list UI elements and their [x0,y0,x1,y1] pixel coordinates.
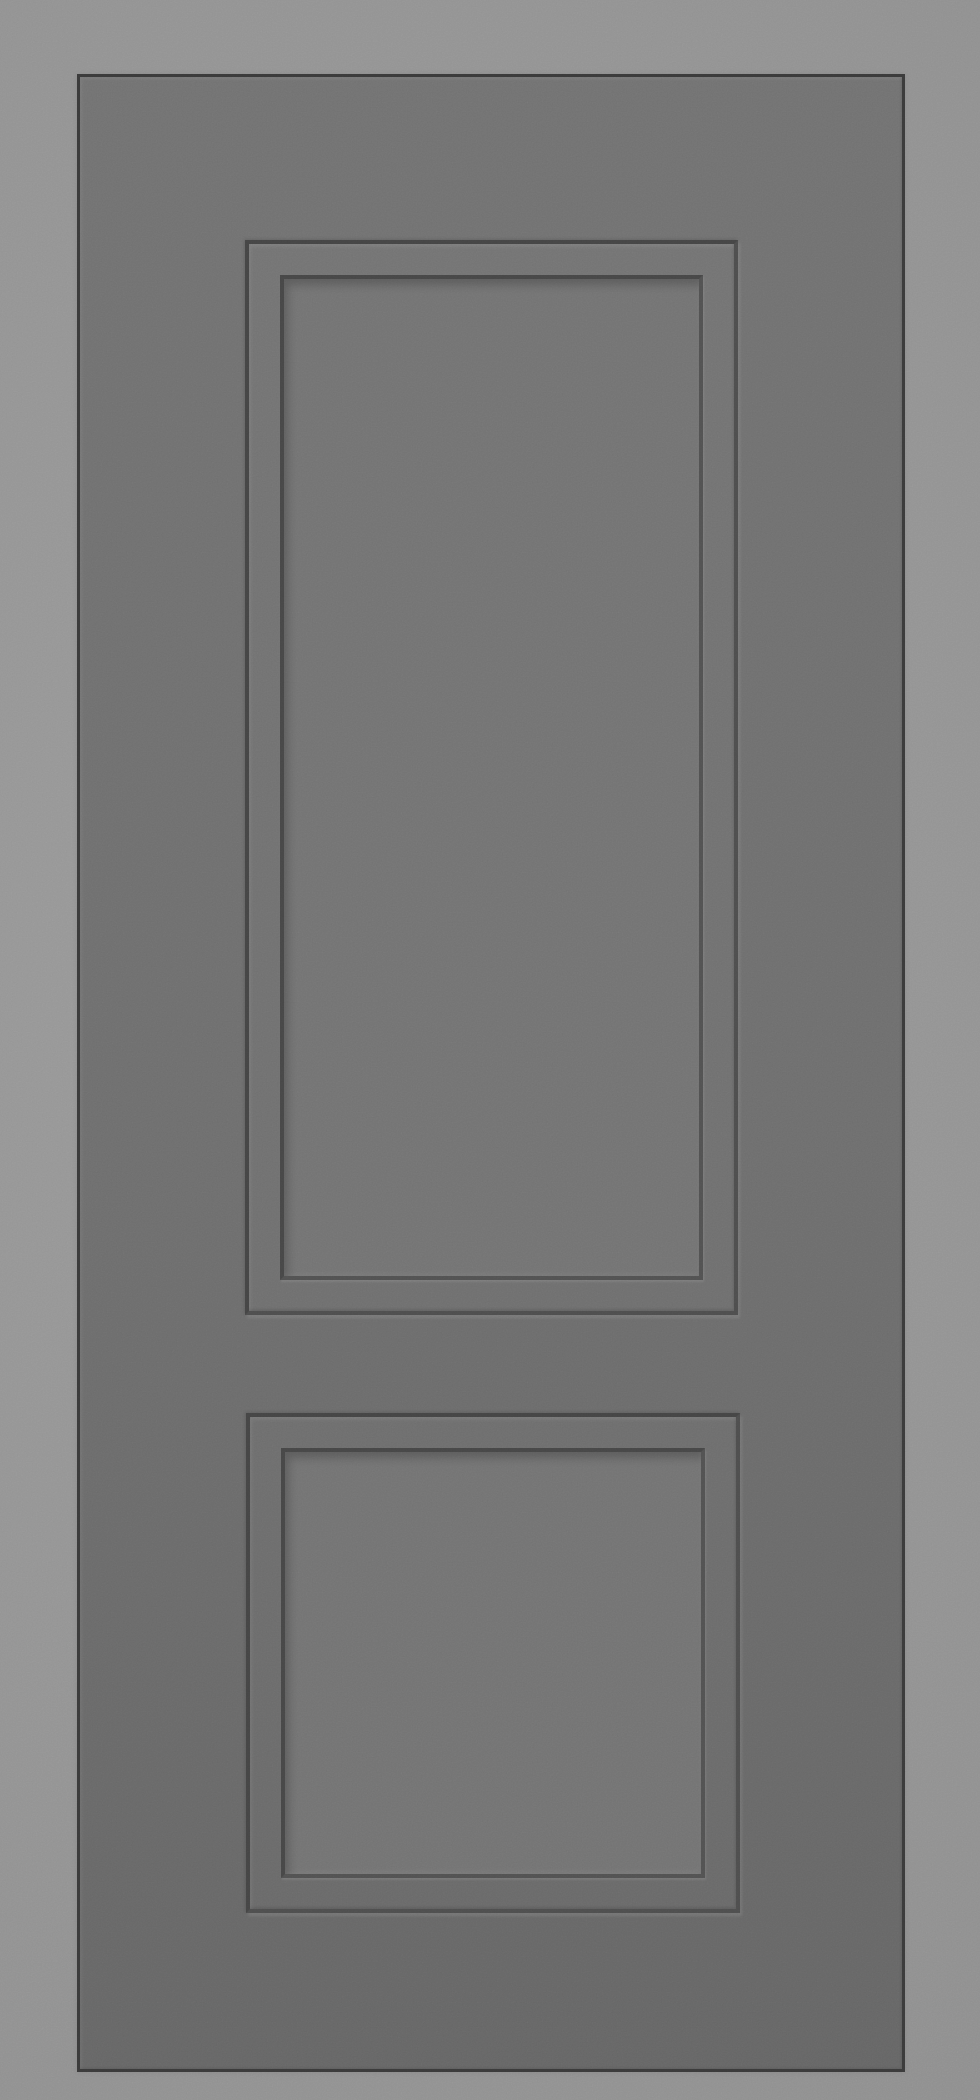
door-slab [77,74,905,2072]
door-lower-panel-field [281,1448,705,1878]
door-upper-panel-field [280,275,703,1280]
door-lower-panel-moulding [246,1413,740,1913]
scene-background [0,0,980,2100]
door-upper-panel-moulding [245,240,738,1315]
